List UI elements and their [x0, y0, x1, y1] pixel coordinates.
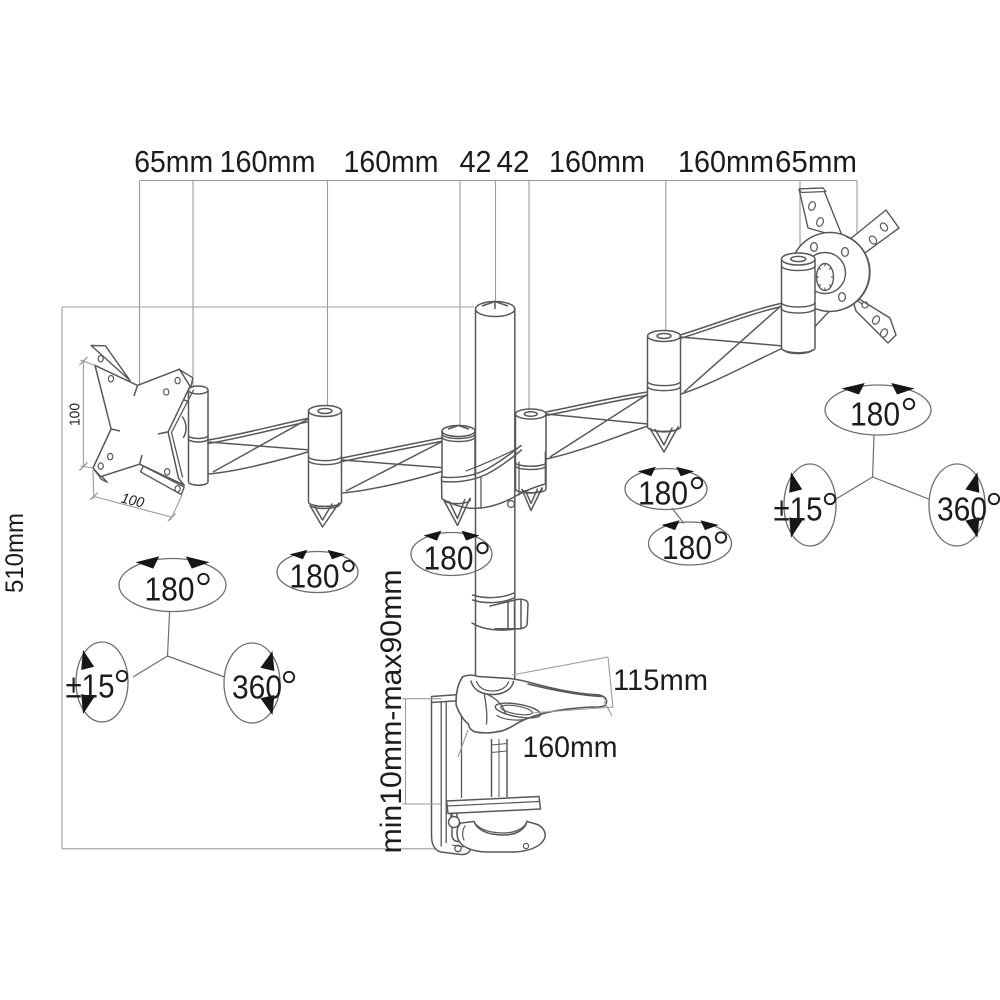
svg-text:100: 100 — [68, 403, 84, 426]
svg-text:180: 180 — [638, 475, 688, 512]
svg-text:min10mm-max90mm: min10mm-max90mm — [375, 570, 408, 854]
svg-text:65mm: 65mm — [775, 144, 857, 179]
svg-text:160mm: 160mm — [523, 731, 618, 764]
svg-text:42: 42 — [460, 144, 492, 179]
svg-text:510mm: 510mm — [1, 513, 29, 593]
svg-text:360: 360 — [232, 669, 282, 706]
svg-text:180: 180 — [290, 558, 340, 595]
svg-text:42: 42 — [497, 144, 530, 179]
svg-text:180: 180 — [662, 529, 712, 566]
svg-text:65mm: 65mm — [134, 144, 213, 179]
svg-text:160mm: 160mm — [344, 144, 439, 179]
svg-text:±15: ±15 — [66, 668, 115, 705]
svg-text:360: 360 — [937, 491, 987, 528]
svg-text:160mm: 160mm — [549, 144, 645, 179]
svg-text:180: 180 — [145, 571, 195, 608]
svg-text:160mm: 160mm — [678, 144, 774, 179]
svg-text:180: 180 — [424, 540, 474, 577]
svg-text:115mm: 115mm — [613, 664, 708, 697]
svg-text:±15: ±15 — [774, 491, 823, 528]
svg-text:160mm: 160mm — [220, 144, 316, 179]
svg-text:180: 180 — [850, 396, 900, 433]
